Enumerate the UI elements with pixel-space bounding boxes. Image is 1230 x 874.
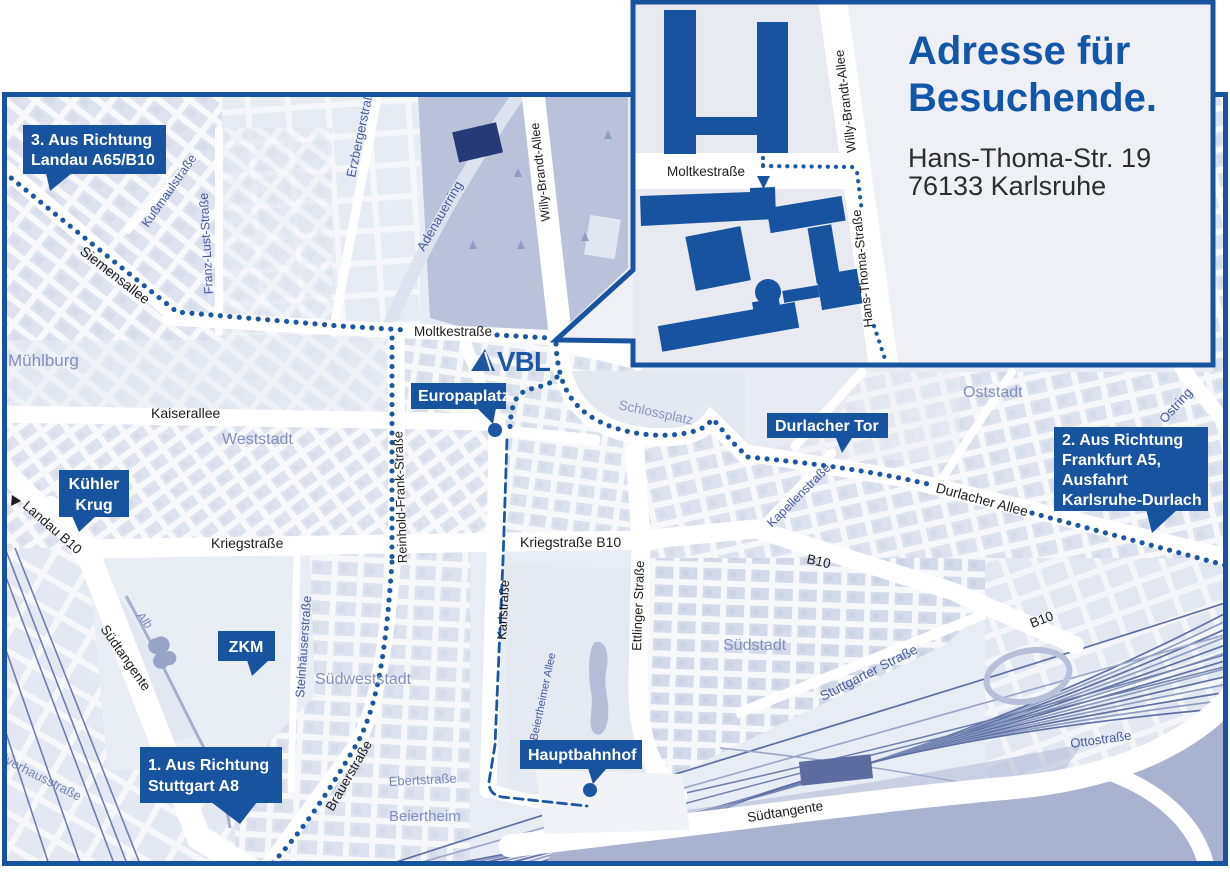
svg-text:Hauptbahnhof: Hauptbahnhof — [528, 747, 637, 764]
svg-text:Südweststadt: Südweststadt — [315, 671, 412, 688]
svg-text:Beiertheim: Beiertheim — [389, 808, 461, 825]
svg-text:1. Aus Richtung: 1. Aus Richtung — [148, 757, 269, 774]
svg-text:3. Aus Richtung: 3. Aus Richtung — [31, 132, 152, 149]
svg-text:Ettlinger Straße: Ettlinger Straße — [629, 560, 647, 651]
svg-text:VBL: VBL — [497, 346, 550, 377]
svg-text:Südstadt: Südstadt — [723, 637, 787, 654]
svg-text:Landau A65/B10: Landau A65/B10 — [31, 152, 155, 169]
svg-text:Besuchende.: Besuchende. — [908, 76, 1157, 120]
svg-text:Karlstraße: Karlstraße — [494, 579, 512, 640]
svg-text:Kaiserallee: Kaiserallee — [151, 405, 220, 421]
svg-text:Adresse für: Adresse für — [908, 29, 1130, 73]
svg-text:Ausfahrt: Ausfahrt — [1062, 472, 1128, 489]
svg-text:ZKM: ZKM — [229, 639, 264, 656]
svg-text:Europaplatz: Europaplatz — [418, 388, 510, 405]
svg-text:Kriegstraße B10: Kriegstraße B10 — [520, 534, 621, 550]
svg-text:Moltkestraße: Moltkestraße — [414, 324, 492, 339]
svg-text:Weststadt: Weststadt — [222, 431, 293, 448]
svg-text:Durlacher Tor: Durlacher Tor — [775, 418, 879, 435]
svg-text:Kriegstraße: Kriegstraße — [211, 535, 284, 551]
svg-text:Karlsruhe-Durlach: Karlsruhe-Durlach — [1062, 492, 1202, 509]
svg-text:Kühler: Kühler — [69, 476, 120, 493]
svg-text:Stuttgart A8: Stuttgart A8 — [148, 778, 239, 795]
svg-text:Frankfurt A5,: Frankfurt A5, — [1062, 452, 1161, 469]
svg-text:Mühlburg: Mühlburg — [8, 351, 79, 370]
svg-text:Hans-Thoma-Str. 19: Hans-Thoma-Str. 19 — [908, 143, 1151, 173]
svg-text:2. Aus Richtung: 2. Aus Richtung — [1062, 432, 1183, 449]
svg-text:76133 Karlsruhe: 76133 Karlsruhe — [908, 171, 1106, 201]
svg-text:Krug: Krug — [75, 497, 112, 514]
svg-text:Oststadt: Oststadt — [963, 384, 1023, 401]
svg-text:Moltkestraße: Moltkestraße — [667, 164, 745, 179]
